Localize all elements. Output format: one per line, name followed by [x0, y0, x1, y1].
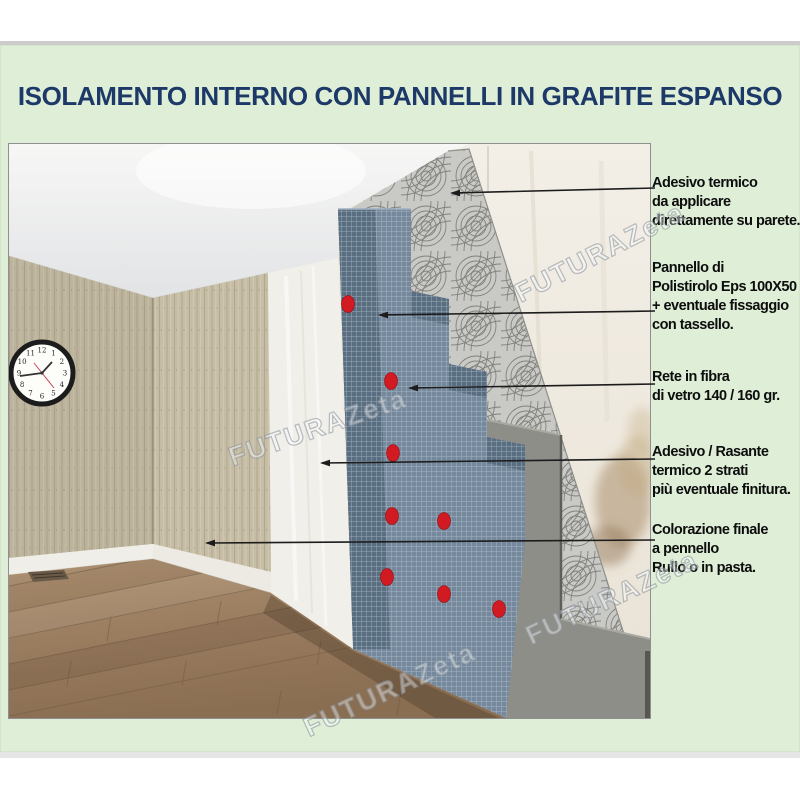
- callout-rete-fibra: Rete in fibra di vetro 140 / 160 gr.: [652, 368, 800, 406]
- room-wall-right: [153, 273, 271, 572]
- callout-colorazione: Colorazione finale a pennello Rullo o in…: [652, 521, 800, 578]
- page-title: ISOLAMENTO INTERNO CON PANNELLI IN GRAFI…: [0, 81, 800, 112]
- infographic-page: ISOLAMENTO INTERNO CON PANNELLI IN GRAFI…: [0, 0, 800, 800]
- room-wall-left: [9, 256, 153, 558]
- bottom-divider: [0, 752, 800, 758]
- svg-text:6: 6: [40, 393, 45, 401]
- svg-text:4: 4: [60, 381, 65, 389]
- svg-text:8: 8: [20, 381, 24, 389]
- svg-text:7: 7: [28, 389, 32, 397]
- svg-text:11: 11: [26, 350, 35, 358]
- insulation-photo: 12 1 2 3 4 5 6 7 8 9 10 11: [8, 143, 651, 719]
- svg-text:12: 12: [38, 347, 47, 355]
- callout-pannello-eps: Pannello di Polistirolo Eps 100X50 + eve…: [652, 259, 800, 335]
- svg-text:10: 10: [18, 358, 27, 366]
- layer-finish-white: [268, 258, 353, 649]
- svg-text:1: 1: [51, 350, 55, 358]
- callout-adesivo-rasante: Adesivo / Rasante termico 2 strati più e…: [652, 443, 800, 500]
- cutaway-scene: 12 1 2 3 4 5 6 7 8 9 10 11: [9, 144, 650, 718]
- callout-adesivo-termico: Adesivo termico da applicare direttament…: [652, 174, 800, 231]
- svg-text:2: 2: [60, 358, 64, 366]
- wall-clock: 12 1 2 3 4 5 6 7 8 9 10 11: [11, 342, 73, 404]
- svg-text:3: 3: [63, 370, 67, 378]
- svg-text:5: 5: [51, 389, 55, 397]
